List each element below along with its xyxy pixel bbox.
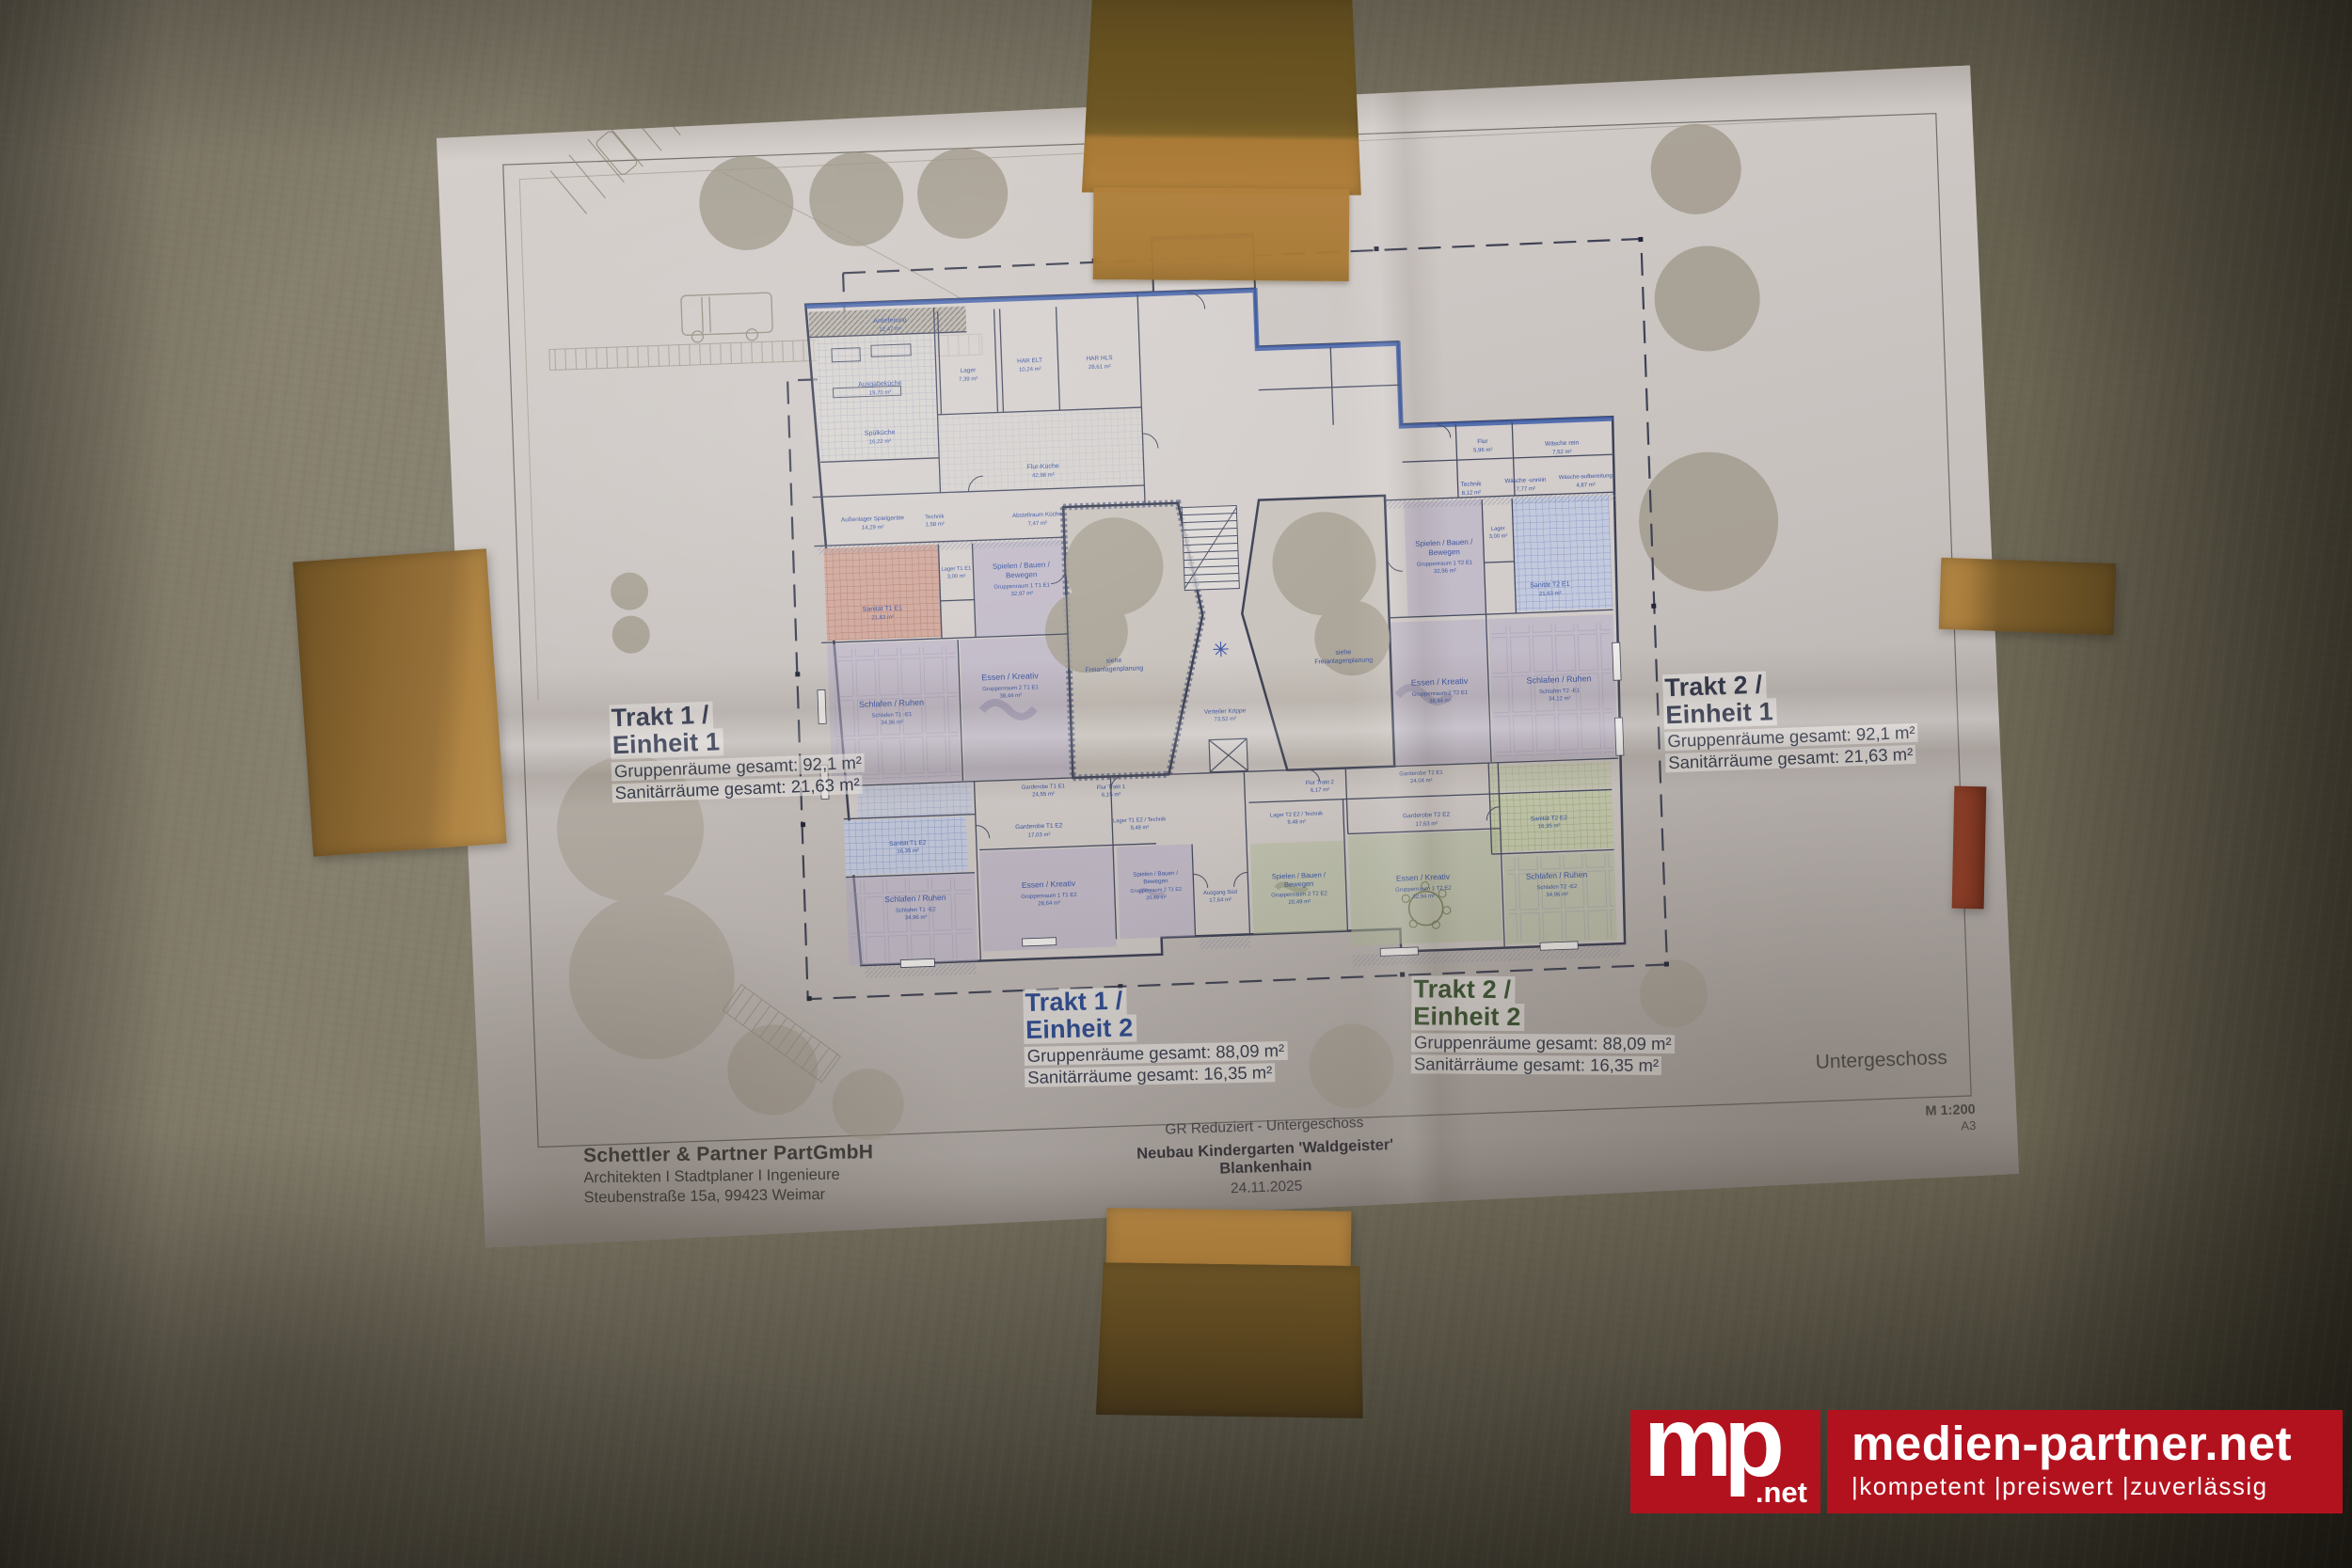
room-label: Technik — [1460, 481, 1482, 488]
architect-block: Schettler & Partner PartGmbH Architekten… — [583, 1141, 874, 1207]
room-label: 1,58 m² — [925, 522, 945, 529]
mp-logo: mp .net — [1630, 1410, 1820, 1513]
room-label: 24,55 m² — [1032, 792, 1055, 799]
room-label: Wäsche rein — [1545, 439, 1580, 447]
architect-name: Schettler & Partner PartGmbH — [583, 1141, 874, 1167]
tape-left — [293, 548, 506, 857]
room-label: Flur — [1477, 438, 1488, 445]
room-label: 19,70 m² — [869, 390, 892, 397]
room-label: 32,94 m² — [1412, 894, 1435, 900]
room-label: 16,22 m² — [869, 439, 892, 446]
tape-right — [1939, 558, 2117, 635]
room-label: 7,47 m² — [1027, 521, 1047, 528]
room-label: 24,04 m² — [1410, 778, 1433, 784]
mp-logo-suffix: .net — [1756, 1476, 1807, 1510]
room-label: Lager — [1491, 526, 1505, 532]
room-label: Sanität T2 E1 — [1530, 581, 1570, 590]
title-block: GR Reduziert - Untergeschoss Neubau Kind… — [1104, 1113, 1427, 1202]
room-label: Bewegen — [1428, 547, 1460, 557]
room-label: 12,47 m² — [879, 326, 901, 333]
tape-red-fragment — [1952, 786, 1987, 910]
room-label: 28,64 m² — [1038, 900, 1060, 907]
floor-label: Untergeschoss — [1815, 1047, 1947, 1074]
room-label: 73,52 m² — [1214, 717, 1236, 723]
room-label: 7,52 m² — [1552, 450, 1572, 456]
room-label: 3,00 m² — [947, 574, 966, 580]
room-label: Essen / Kreativ — [1396, 872, 1451, 883]
room-label: 34,96 m² — [1546, 892, 1568, 898]
room-label: 6,15 m² — [1102, 792, 1121, 799]
room-label: HAR HLS — [1086, 355, 1113, 362]
room-label: 28,61 m² — [1089, 364, 1111, 371]
annotation-title: Trakt 1 / — [1023, 988, 1126, 1018]
room-label: HAR ELT — [1017, 357, 1042, 365]
architect-line2: Architekten I Stadtplaner I Ingenieure — [583, 1165, 874, 1187]
stair — [1182, 506, 1239, 591]
architect-line3: Steubenstraße 15a, 99423 Weimar — [583, 1185, 874, 1207]
annotation-trakt1-einheit2: Trakt 1 / Einheit 2 Gruppenräume gesamt:… — [1023, 984, 1288, 1087]
room-label: 10,24 m² — [1019, 367, 1041, 373]
photo-of-floorplan: { "plan": { "annotations": { "t1e1": {"t… — [0, 0, 2352, 1568]
room-label: Flur Trakt 2 — [1306, 780, 1335, 786]
sheet-size: A3 — [1895, 1118, 1976, 1135]
room-label: 16,35 m² — [1538, 823, 1561, 830]
annotation-line: Gruppenräume gesamt: 88,09 m² — [1411, 1034, 1675, 1054]
room-label: Bewegen — [1284, 879, 1314, 889]
room-label: 14,29 m² — [862, 525, 884, 531]
room-label: 17,64 m² — [1209, 897, 1232, 904]
room-label: Flur Trakt 1 — [1097, 784, 1126, 791]
room-label: Sanität T2 E2 — [1531, 815, 1568, 822]
annotation-title: Einheit 1 — [610, 728, 723, 759]
tape-top-on-paper — [1093, 187, 1350, 281]
room-label: 7,77 m² — [1517, 486, 1536, 493]
room-label: ✳ — [1212, 638, 1230, 662]
room-label: 32,96 m² — [1434, 568, 1456, 575]
room-label: 42,98 m² — [1032, 472, 1055, 479]
room-label: 9,48 m² — [1287, 819, 1306, 826]
room-label: 20,49 m² — [1288, 899, 1311, 906]
annotation-trakt2-einheit1: Trakt 2 / Einheit 1 Gruppenräume gesamt:… — [1662, 666, 1919, 773]
room-label: 6,17 m² — [1311, 787, 1330, 794]
room-label: 34,96 m² — [905, 915, 928, 922]
annotation-line: Sanitärräume gesamt: 16,35 m² — [1411, 1055, 1661, 1076]
room-label: 32,97 m² — [1010, 591, 1033, 597]
room-label: 20,49 m² — [1146, 895, 1167, 901]
room-label: Bewegen — [1143, 878, 1168, 885]
room-label: 7,39 m² — [959, 376, 978, 383]
room-label: 34,12 m² — [1549, 696, 1571, 703]
room-label: Lager — [960, 367, 977, 374]
room-label: 3,00 m² — [1489, 533, 1508, 540]
room-label: 21,63 m² — [871, 615, 894, 622]
annotation-trakt1-einheit1: Trakt 1 / Einheit 1 Gruppenräume gesamt:… — [609, 696, 866, 803]
room-label: Spülküche — [865, 429, 896, 436]
room-label: Essen / Kreativ — [1022, 879, 1076, 890]
room-label: 38,44 m² — [999, 693, 1022, 700]
tape-bottom — [1096, 1262, 1365, 1418]
tape-top — [1079, 0, 1363, 196]
room-label: 21,63 m² — [1539, 591, 1562, 597]
elevator — [1209, 738, 1248, 771]
room-label: 5,96 m² — [1473, 448, 1493, 454]
annotation-trakt2-einheit2: Trakt 2 / Einheit 2 Gruppenräume gesamt:… — [1411, 975, 1675, 1075]
room-label: siehe — [1335, 649, 1351, 657]
scale-value: M 1:200 — [1894, 1102, 1976, 1120]
room-label: 16,35 m² — [897, 848, 919, 855]
watermark: mp .net medien-partner.net |kompetent |p… — [1630, 1410, 2343, 1513]
watermark-text-box: medien-partner.net |kompetent |preiswert… — [1827, 1410, 2343, 1513]
room-label: Anlieferung — [873, 317, 907, 325]
room-label: siehe — [1106, 657, 1122, 665]
room-label: 4,87 m² — [1576, 483, 1596, 489]
room-label: 34,96 m² — [881, 720, 903, 726]
room-label: 38,44 m² — [1429, 698, 1452, 705]
annotation-title: Einheit 1 — [1663, 698, 1777, 729]
annotation-title: Einheit 2 — [1411, 1004, 1525, 1032]
room-label: Lager T1 E1 — [941, 566, 971, 573]
annotation-title: Einheit 2 — [1024, 1015, 1137, 1045]
watermark-site: medien-partner.net — [1851, 1419, 2343, 1467]
room-label: 8,12 m² — [1462, 490, 1482, 497]
room-label: Bewegen — [1006, 570, 1038, 579]
room-label: Sanität T1 E2 — [889, 840, 927, 847]
room-label: Flur-Küche — [1026, 463, 1059, 470]
scale-block: M 1:200 A3 — [1894, 1102, 1976, 1135]
watermark-tagline: |kompetent |preiswert |zuverlässig — [1851, 1472, 2343, 1501]
room-label: 9,48 m² — [1130, 825, 1149, 832]
room-label: 17,63 m² — [1416, 821, 1438, 828]
room-label: Ausgang Süd — [1203, 890, 1237, 896]
delivery-truck — [681, 293, 773, 342]
annotation-title: Trakt 2 / — [1411, 975, 1515, 1004]
room-label: Technik — [925, 515, 946, 521]
room-label: 17,03 m² — [1028, 832, 1051, 839]
